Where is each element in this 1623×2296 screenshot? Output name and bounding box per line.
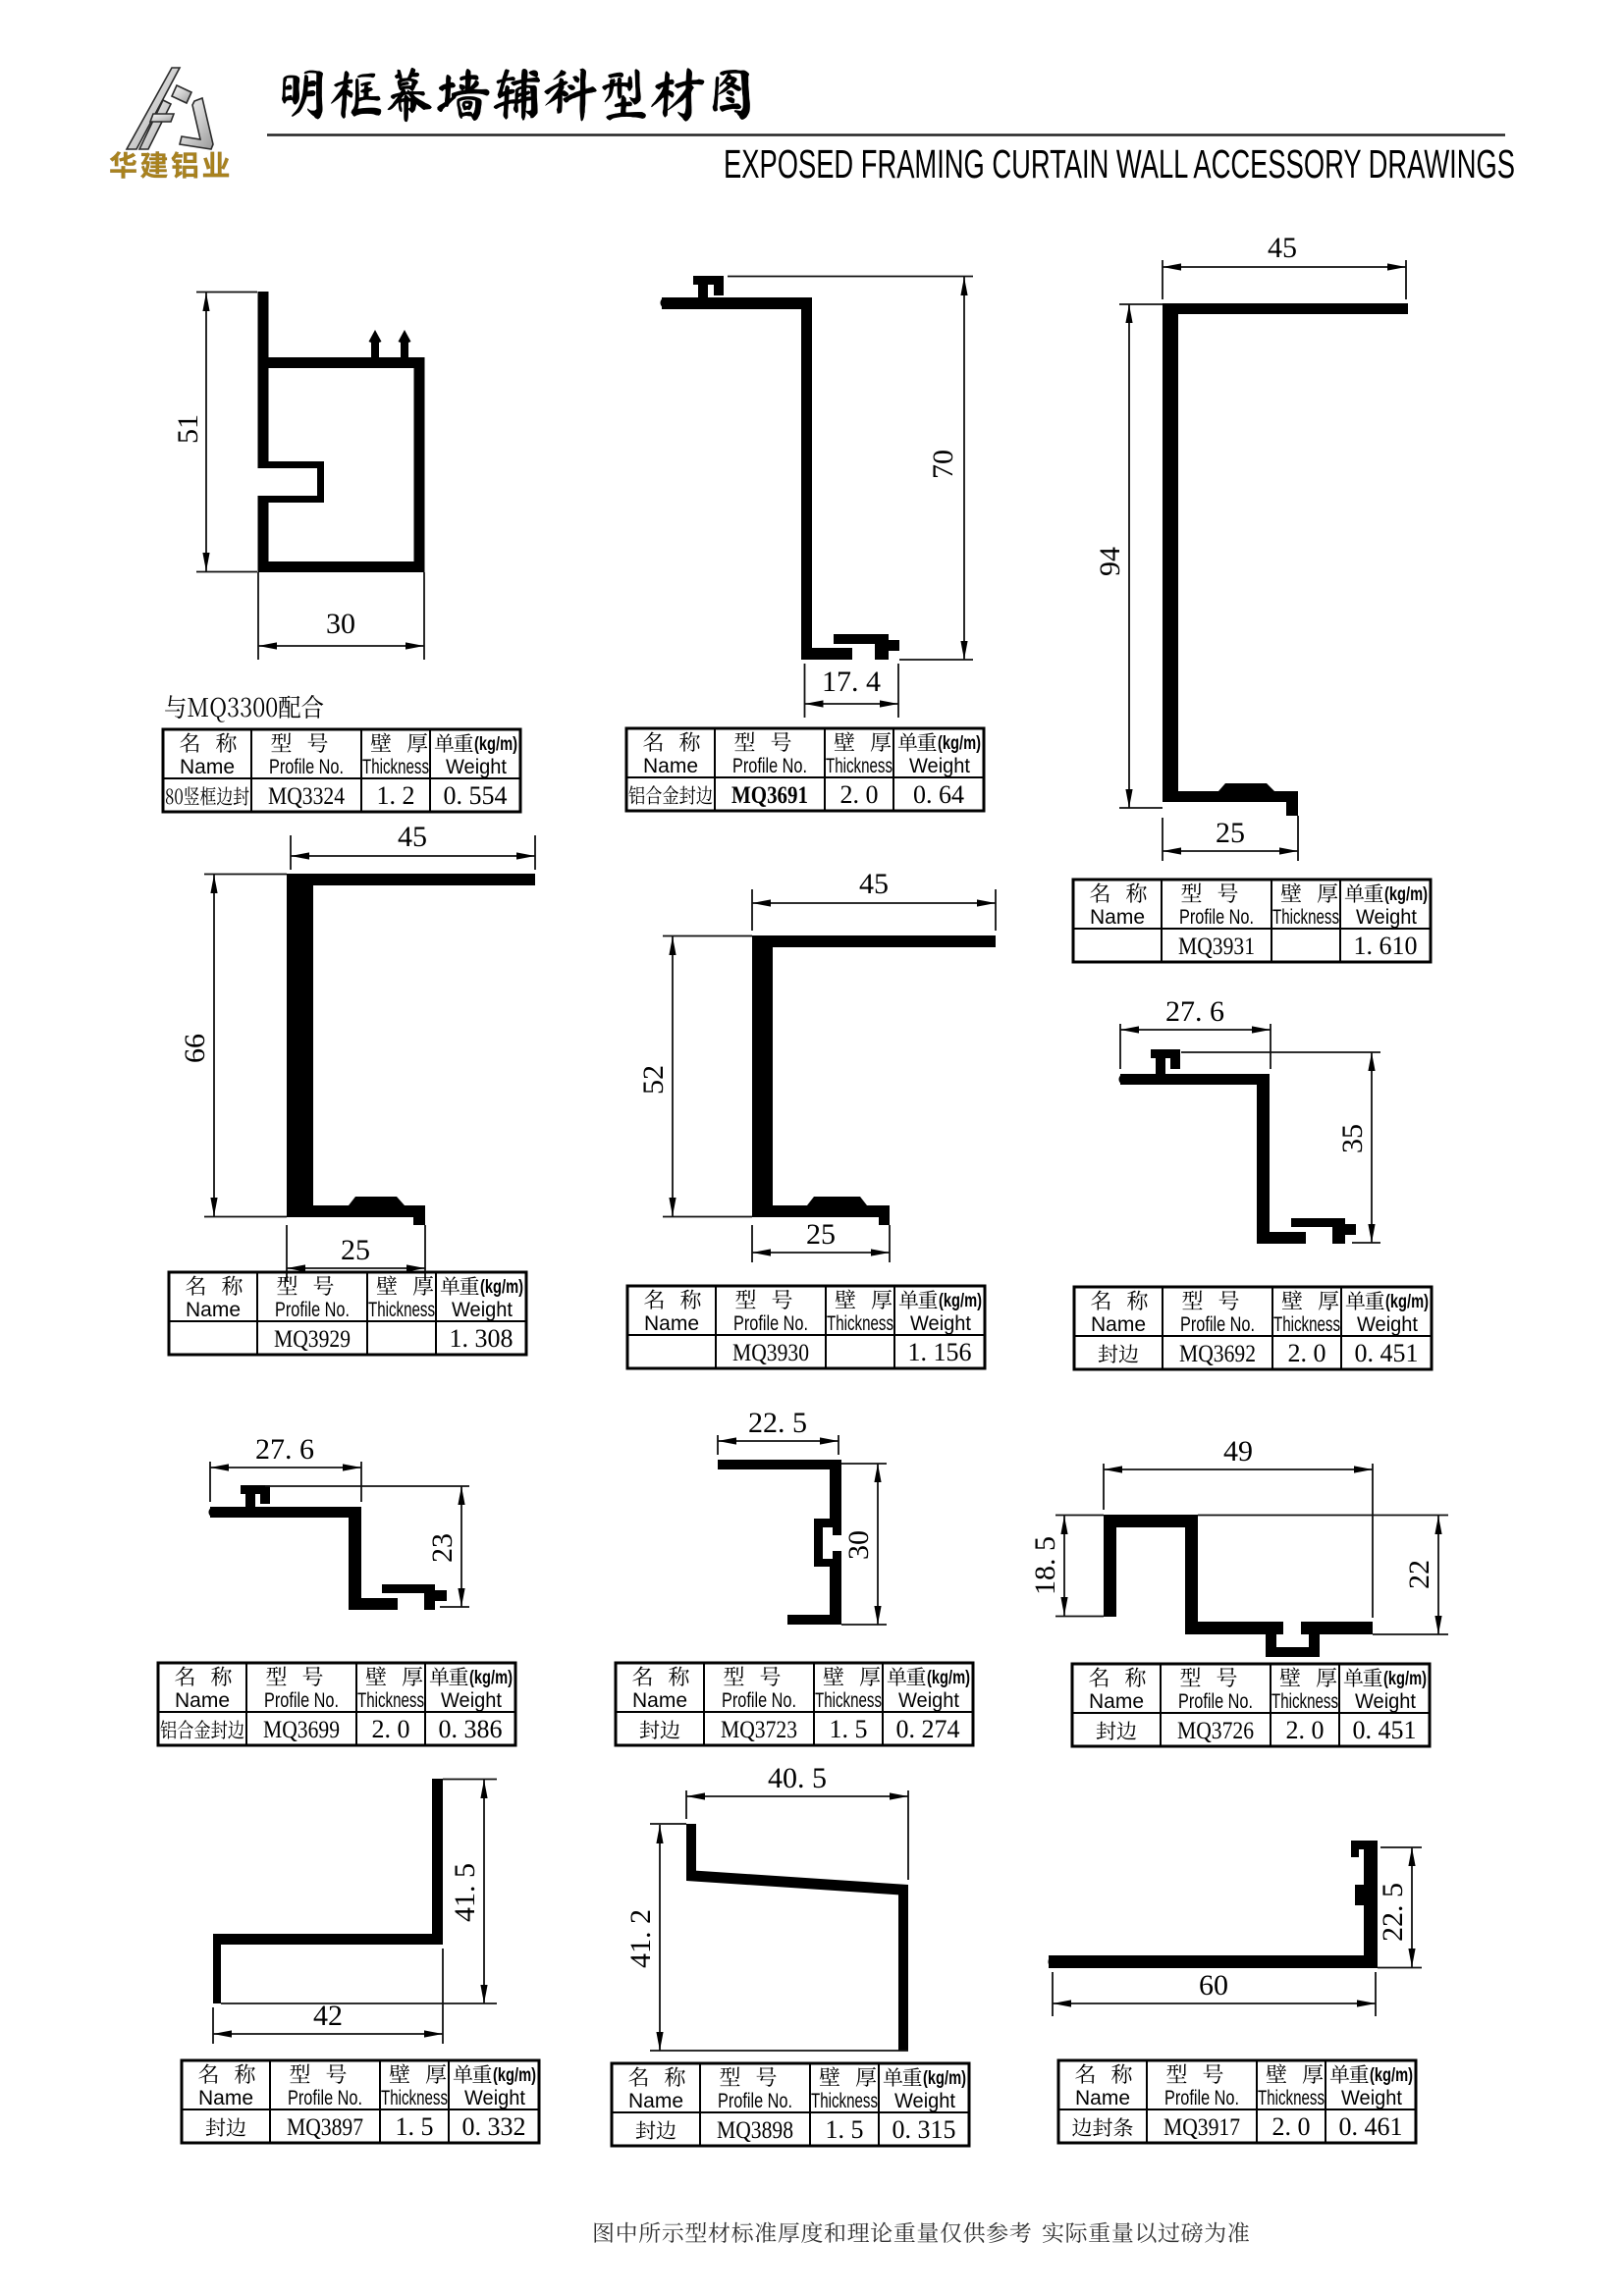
svg-text:18. 5: 18. 5 <box>1029 1536 1061 1595</box>
svg-text:0. 274: 0. 274 <box>896 1715 960 1743</box>
svg-text:25: 25 <box>806 1218 836 1251</box>
svg-text:25: 25 <box>341 1234 370 1266</box>
svg-text:27. 6: 27. 6 <box>255 1433 314 1466</box>
svg-text:45: 45 <box>1268 232 1297 264</box>
svg-text:MQ3324: MQ3324 <box>268 783 345 810</box>
svg-text:27. 6: 27. 6 <box>1165 995 1224 1028</box>
svg-text:35: 35 <box>1336 1124 1369 1153</box>
svg-text:22. 5: 22. 5 <box>1377 1883 1409 1942</box>
svg-text:23: 23 <box>426 1533 459 1563</box>
svg-text:30: 30 <box>326 608 355 640</box>
svg-text:0. 451: 0. 451 <box>1353 1716 1417 1744</box>
svg-text:1. 5: 1. 5 <box>826 2115 864 2144</box>
svg-text:2. 0: 2. 0 <box>1288 1339 1326 1367</box>
svg-text:66: 66 <box>179 1034 211 1063</box>
svg-text:0. 386: 0. 386 <box>439 1715 503 1743</box>
svg-text:0. 315: 0. 315 <box>893 2115 956 2144</box>
svg-text:1. 5: 1. 5 <box>830 1715 868 1743</box>
svg-text:MQ3898: MQ3898 <box>717 2117 793 2144</box>
svg-text:0. 461: 0. 461 <box>1339 2112 1403 2141</box>
svg-text:MQ3917: MQ3917 <box>1163 2114 1240 2141</box>
svg-text:2. 0: 2. 0 <box>1286 1716 1325 1744</box>
svg-text:45: 45 <box>859 868 889 900</box>
svg-text:94: 94 <box>1094 547 1126 576</box>
svg-text:EXPOSED FRAMING CURTAIN WALL A: EXPOSED FRAMING CURTAIN WALL ACCESSORY D… <box>724 141 1515 187</box>
svg-text:MQ3726: MQ3726 <box>1177 1718 1254 1744</box>
svg-text:1. 5: 1. 5 <box>396 2112 434 2141</box>
svg-text:40. 5: 40. 5 <box>768 1762 827 1794</box>
svg-text:1. 610: 1. 610 <box>1354 932 1418 960</box>
svg-text:1. 156: 1. 156 <box>908 1338 972 1366</box>
svg-text:MQ3723: MQ3723 <box>721 1717 797 1743</box>
svg-text:2. 0: 2. 0 <box>372 1715 410 1743</box>
svg-text:1. 2: 1. 2 <box>377 781 415 810</box>
svg-text:22. 5: 22. 5 <box>748 1407 807 1439</box>
svg-text:17. 4: 17. 4 <box>822 666 881 698</box>
svg-text:42: 42 <box>313 2000 343 2032</box>
svg-text:70: 70 <box>927 450 959 479</box>
svg-text:1. 308: 1. 308 <box>450 1324 514 1353</box>
svg-text:45: 45 <box>398 821 427 853</box>
svg-text:52: 52 <box>637 1065 670 1095</box>
svg-text:MQ3931: MQ3931 <box>1178 934 1255 960</box>
svg-text:41. 5: 41. 5 <box>449 1863 481 1922</box>
svg-text:22: 22 <box>1403 1560 1435 1589</box>
svg-text:MQ3691: MQ3691 <box>731 782 808 809</box>
svg-text:60: 60 <box>1199 1969 1228 2002</box>
svg-text:25: 25 <box>1216 817 1245 849</box>
svg-text:MQ3929: MQ3929 <box>274 1326 351 1353</box>
svg-text:MQ3930: MQ3930 <box>732 1340 809 1366</box>
svg-text:0. 554: 0. 554 <box>444 781 508 810</box>
svg-text:49: 49 <box>1223 1435 1253 1468</box>
svg-text:2. 0: 2. 0 <box>1272 2112 1311 2141</box>
svg-text:41. 2: 41. 2 <box>624 1909 657 1968</box>
svg-text:51: 51 <box>172 414 204 444</box>
svg-text:2. 0: 2. 0 <box>840 780 879 809</box>
svg-text:0. 451: 0. 451 <box>1355 1339 1419 1367</box>
svg-text:MQ3699: MQ3699 <box>263 1717 340 1743</box>
svg-text:MQ3897: MQ3897 <box>287 2114 363 2141</box>
svg-text:MQ3692: MQ3692 <box>1179 1341 1256 1367</box>
svg-text:0. 64: 0. 64 <box>913 780 964 809</box>
svg-text:30: 30 <box>842 1530 875 1560</box>
svg-text:0. 332: 0. 332 <box>462 2112 526 2141</box>
